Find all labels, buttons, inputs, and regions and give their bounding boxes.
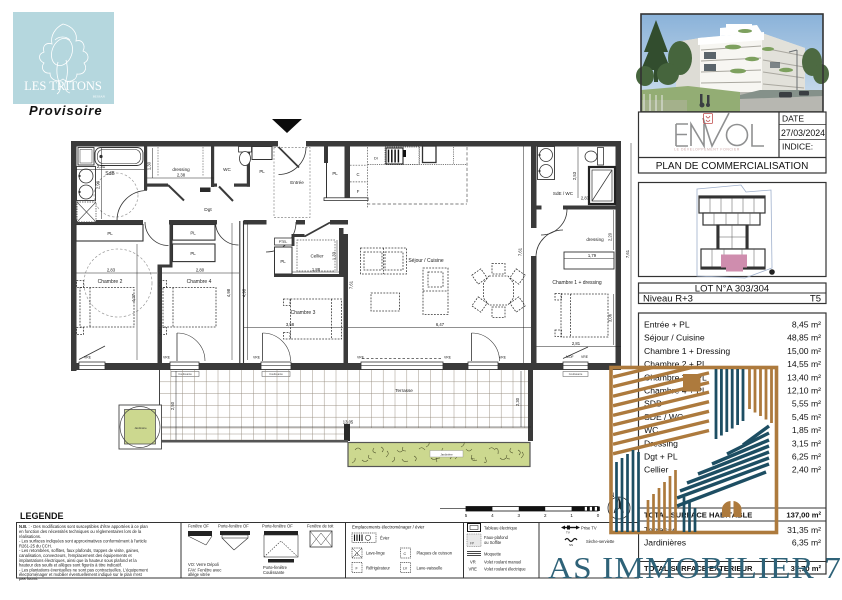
- svg-text:LV: LV: [403, 567, 408, 571]
- svg-text:Chambre 1 + Dressing: Chambre 1 + Dressing: [644, 346, 730, 356]
- svg-text:Chambre 1 + dressing: Chambre 1 + dressing: [552, 280, 602, 286]
- svg-text:Dgt: Dgt: [204, 207, 212, 213]
- svg-text:31,35 m²: 31,35 m²: [787, 525, 821, 535]
- svg-text:VR: VR: [470, 560, 476, 565]
- svg-text:2,90: 2,90: [96, 180, 101, 189]
- svg-text:WC: WC: [223, 167, 231, 172]
- svg-text:Coulissante: Coulissante: [263, 570, 285, 575]
- svg-text:Coulissante: Coulissante: [269, 372, 283, 376]
- svg-text:2,80: 2,80: [196, 268, 205, 273]
- svg-text:VRE: VRE: [499, 356, 507, 360]
- svg-text:VRE: VRE: [84, 356, 92, 360]
- svg-text:DATE: DATE: [782, 114, 804, 124]
- svg-text:7,61: 7,61: [518, 247, 523, 256]
- svg-text:Prise TV: Prise TV: [581, 526, 597, 531]
- svg-text:PL: PL: [332, 171, 338, 176]
- svg-text:13,05: 13,05: [343, 420, 354, 425]
- svg-text:Moquette: Moquette: [484, 552, 502, 557]
- svg-text:Chambre 3: Chambre 3: [291, 310, 316, 316]
- svg-text:27/03/2024: 27/03/2024: [781, 128, 825, 138]
- svg-text:FP: FP: [470, 542, 474, 546]
- svg-text:VRE: VRE: [581, 355, 589, 359]
- svg-text:Réfrigérateur: Réfrigérateur: [366, 566, 391, 571]
- svg-text:Porte-fenêtre OF: Porte-fenêtre OF: [262, 524, 293, 529]
- svg-text:Volet roulant manuel: Volet roulant manuel: [484, 560, 521, 565]
- svg-text:15,00 m²: 15,00 m²: [787, 346, 821, 356]
- svg-text:Chambre 4: Chambre 4: [187, 279, 212, 285]
- svg-text:TV: TV: [566, 531, 570, 535]
- svg-text:7,61: 7,61: [349, 280, 354, 289]
- svg-text:48,85 m²: 48,85 m²: [787, 333, 821, 343]
- svg-text:VRE: VRE: [253, 356, 261, 360]
- svg-text:1,33: 1,33: [332, 251, 337, 260]
- svg-text:BESSAN: BESSAN: [93, 95, 106, 99]
- svg-text:PL: PL: [107, 231, 113, 236]
- svg-text:Fenêtre de toit: Fenêtre de toit: [307, 524, 334, 529]
- svg-text:PLAN DE COMMERCIALISATION: PLAN DE COMMERCIALISATION: [656, 161, 809, 172]
- svg-text:6,35 m²: 6,35 m²: [792, 538, 821, 548]
- svg-text:Niveau R+3: Niveau R+3: [643, 294, 693, 305]
- svg-text:Volet roulant électrique: Volet roulant électrique: [484, 567, 526, 572]
- svg-text:dressing: dressing: [586, 237, 604, 242]
- svg-text:2,20: 2,20: [608, 232, 613, 241]
- svg-text:Entrée + PL: Entrée + PL: [644, 320, 690, 330]
- svg-text:3,58: 3,58: [286, 322, 295, 327]
- svg-text:Jardinière: Jardinière: [440, 452, 453, 456]
- svg-text:Entrée: Entrée: [290, 180, 304, 185]
- svg-text:Cellier: Cellier: [644, 465, 668, 475]
- svg-text:4,98: 4,98: [242, 288, 247, 297]
- svg-text:AS IMMOBILIER 7: AS IMMOBILIER 7: [548, 550, 842, 585]
- svg-text:SdB: SdB: [105, 171, 115, 177]
- svg-text:LEGENDE: LEGENDE: [20, 511, 64, 521]
- svg-text:5,55 m²: 5,55 m²: [792, 399, 821, 409]
- svg-text:Tableau électrique: Tableau électrique: [484, 526, 518, 531]
- svg-text:Dgt + PL: Dgt + PL: [644, 452, 678, 462]
- svg-text:PTEL: PTEL: [279, 240, 288, 244]
- svg-text:4,98: 4,98: [226, 288, 231, 297]
- svg-text:pas fourni.: pas fourni.: [19, 576, 38, 581]
- svg-text:2,30: 2,30: [515, 397, 520, 406]
- svg-text:Terrasse: Terrasse: [395, 388, 413, 393]
- svg-text:2,50: 2,50: [170, 401, 175, 410]
- svg-text:8,45 m²: 8,45 m²: [792, 320, 821, 330]
- svg-text:1,79: 1,79: [588, 253, 597, 258]
- svg-text:VRE: VRE: [469, 567, 478, 572]
- svg-text:12,10 m²: 12,10 m²: [787, 386, 821, 396]
- svg-text:VRE: VRE: [444, 356, 452, 360]
- svg-text:2,83: 2,83: [581, 196, 590, 201]
- svg-text:LL: LL: [355, 553, 359, 557]
- svg-text:LE DÉVELOPPEMENT FONCIER: LE DÉVELOPPEMENT FONCIER: [674, 147, 740, 152]
- svg-text:Porte-fenêtre OF: Porte-fenêtre OF: [218, 524, 249, 529]
- svg-text:2,81: 2,81: [572, 341, 581, 346]
- svg-text:Sèche-serviette: Sèche-serviette: [586, 539, 615, 544]
- svg-text:VO: Verre Dépoli: VO: Verre Dépoli: [188, 562, 219, 567]
- svg-text:Jardinières: Jardinières: [644, 538, 686, 548]
- svg-text:2,53: 2,53: [572, 171, 577, 180]
- svg-text:Séjour / Cuisine: Séjour / Cuisine: [644, 333, 705, 343]
- svg-text:1,88: 1,88: [312, 267, 321, 272]
- svg-text:2,38: 2,38: [177, 173, 186, 178]
- svg-text:dressing: dressing: [172, 167, 190, 172]
- svg-text:7,61: 7,61: [625, 249, 630, 258]
- svg-text:VRE: VRE: [163, 356, 171, 360]
- svg-text:Coulissante: Coulissante: [178, 372, 192, 376]
- svg-text:13,40 m²: 13,40 m²: [787, 372, 821, 382]
- svg-text:Plaques de cuisson: Plaques de cuisson: [417, 551, 453, 556]
- svg-text:Provisoire: Provisoire: [29, 103, 103, 118]
- svg-text:3,06: 3,06: [608, 313, 613, 322]
- svg-text:Emplacements électroménager /: Emplacements électroménager / évier: [352, 525, 425, 530]
- svg-text:6,47: 6,47: [436, 322, 445, 327]
- svg-text:5,45 m²: 5,45 m²: [792, 412, 821, 422]
- svg-text:LES TRITONS: LES TRITONS: [24, 79, 102, 93]
- svg-text:Jardinière: Jardinière: [134, 426, 147, 430]
- svg-text:1,30: 1,30: [147, 161, 152, 170]
- svg-text:PL: PL: [280, 259, 286, 264]
- svg-text:Chambre 2: Chambre 2: [98, 279, 123, 285]
- svg-text:14,55 m²: 14,55 m²: [787, 359, 821, 369]
- svg-text:ou Soffite: ou Soffite: [484, 540, 502, 545]
- svg-text:Évier: Évier: [380, 536, 390, 541]
- svg-text:PL: PL: [190, 251, 196, 256]
- svg-text:Coulissante: Coulissante: [569, 372, 583, 376]
- svg-text:C: C: [404, 552, 407, 556]
- svg-text:4,27: 4,27: [131, 293, 136, 302]
- svg-text:Lave-linge: Lave-linge: [366, 551, 386, 556]
- svg-text:LOT N°A 303/304: LOT N°A 303/304: [695, 284, 769, 295]
- svg-text:F: F: [357, 189, 360, 194]
- svg-text:2,83: 2,83: [107, 268, 116, 273]
- svg-text:PL: PL: [259, 169, 265, 174]
- svg-text:137,00 m²: 137,00 m²: [786, 511, 821, 520]
- svg-text:Fenêtre OF: Fenêtre OF: [188, 524, 209, 529]
- svg-text:C: C: [356, 172, 359, 177]
- svg-text:INDICE:: INDICE:: [782, 142, 813, 152]
- svg-text:1,85 m²: 1,85 m²: [792, 425, 821, 435]
- svg-text:VRE: VRE: [357, 356, 365, 360]
- svg-text:T5: T5: [810, 294, 821, 305]
- svg-text:Séjour / Cuisine: Séjour / Cuisine: [408, 258, 444, 264]
- svg-text:Lave-vaisselle: Lave-vaisselle: [417, 566, 444, 571]
- svg-text:6,25 m²: 6,25 m²: [792, 452, 821, 462]
- svg-text:2,40 m²: 2,40 m²: [792, 465, 821, 475]
- svg-text:SdE / WC: SdE / WC: [553, 191, 574, 196]
- svg-text:MOF: MOF: [566, 355, 574, 359]
- svg-text:Cellier: Cellier: [310, 254, 323, 259]
- svg-text:PL: PL: [190, 231, 196, 236]
- svg-text:SS: SS: [569, 543, 573, 547]
- svg-text:allège vitrée: allège vitrée: [188, 572, 211, 577]
- svg-text:3,15 m²: 3,15 m²: [792, 438, 821, 448]
